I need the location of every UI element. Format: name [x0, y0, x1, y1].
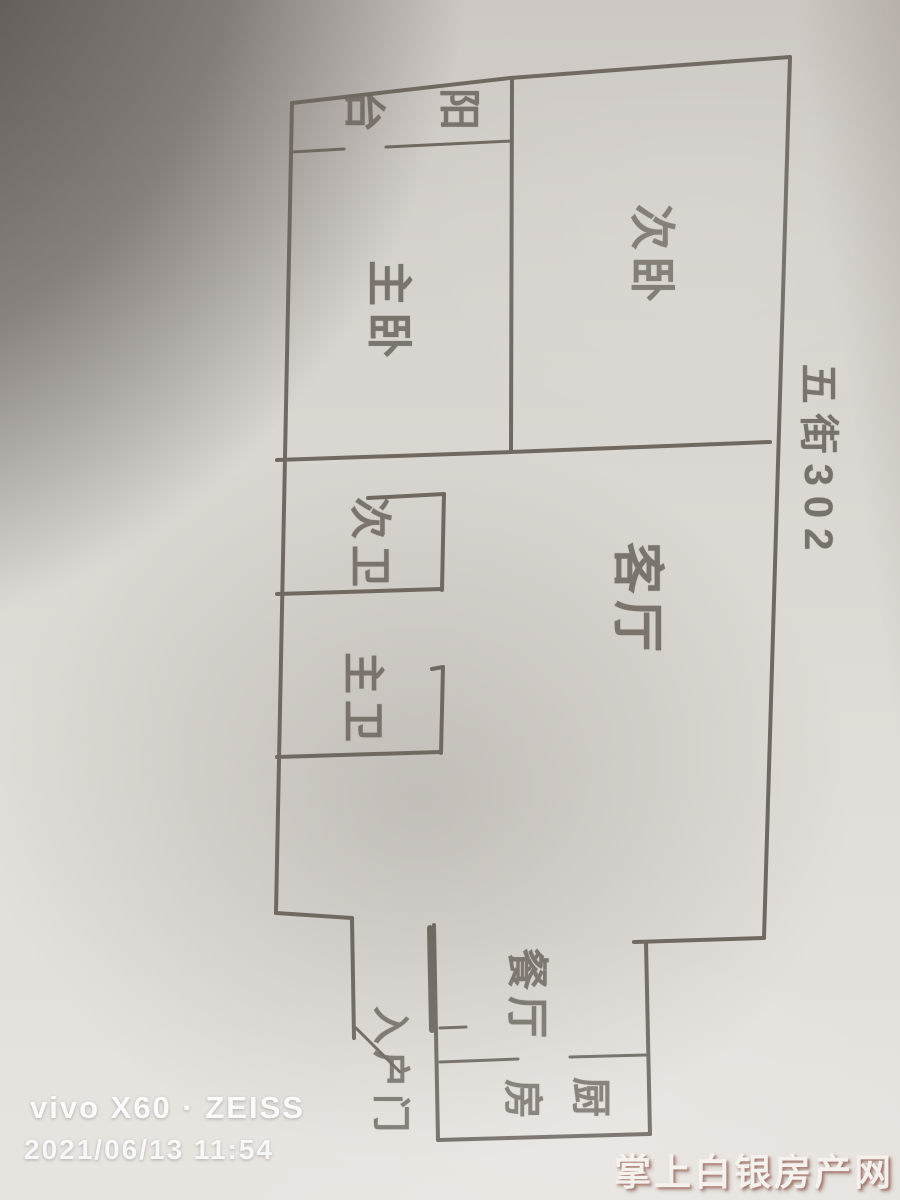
- wall-outer-bottom-step: [276, 913, 354, 1038]
- wall-living-bottom: [634, 938, 764, 942]
- wall-dining-left: [434, 925, 438, 1140]
- wall-dining-left-thick: [430, 928, 432, 1030]
- door-frame-tick: [440, 1027, 466, 1028]
- room-label-master-bedroom: 主卧: [359, 260, 425, 364]
- wall-outer-left: [276, 103, 292, 913]
- wall-balcony: [292, 141, 512, 152]
- floor-plan-photo: 阳 台 次卧 主卧 次卫 主卫 客厅 餐厅 厨 房 入户门 五街302 vivo…: [0, 0, 900, 1200]
- room-label-kitchen-char1: 厨: [565, 1077, 623, 1123]
- camera-watermark-datetime: 2021/06/13 11:54: [24, 1134, 274, 1166]
- room-label-living-room: 客厅: [605, 542, 680, 658]
- wall-bath1-right: [441, 667, 443, 753]
- wall-horizontal-mid: [277, 442, 770, 460]
- room-label-balcony-char1: 阳: [432, 88, 493, 136]
- wall-bath2-right: [442, 494, 444, 590]
- wall-kitchen-divider: [440, 1055, 646, 1062]
- address-annotation: 五街302: [793, 364, 851, 561]
- wall-kitchen-right: [646, 942, 650, 1134]
- floor-plan-drawing: [0, 0, 900, 1200]
- room-label-secondary-bedroom: 次卧: [622, 204, 688, 308]
- room-label-dining-room: 餐厅: [500, 948, 561, 1044]
- room-label-kitchen-char2: 房: [497, 1079, 555, 1125]
- room-label-master-bathroom: 主卫: [336, 652, 397, 748]
- site-watermark: 掌上白银房产网: [614, 1142, 894, 1196]
- wall-bath1-bottom: [277, 752, 441, 757]
- camera-watermark-device: vivo X60 · ZEISS: [30, 1090, 305, 1126]
- wall-vertical-center: [511, 78, 512, 452]
- room-label-balcony-char2: 台: [337, 90, 398, 138]
- entry-door-label: 入户门: [367, 1006, 422, 1138]
- wall-kitchen-bottom: [438, 1134, 650, 1140]
- room-label-secondary-bathroom: 次卫: [343, 497, 404, 593]
- wall-outer-right: [764, 57, 790, 938]
